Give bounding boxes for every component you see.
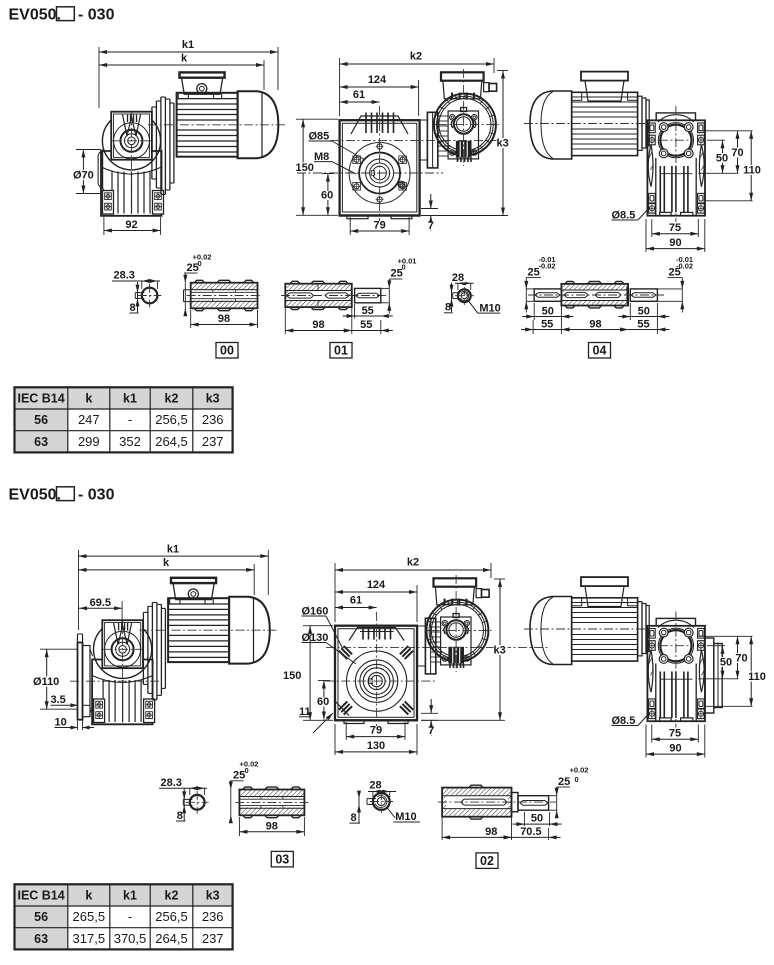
svg-text:28.3: 28.3: [161, 777, 182, 789]
svg-text:k1: k1: [123, 392, 137, 406]
svg-text:k: k: [181, 53, 188, 65]
svg-text:370,5: 370,5: [114, 931, 147, 946]
svg-text:00: 00: [220, 344, 234, 358]
svg-text:55: 55: [637, 319, 649, 331]
svg-text:+0.02: +0.02: [570, 766, 589, 775]
svg-text:EV050.: EV050.: [9, 487, 61, 504]
svg-text:50: 50: [720, 657, 732, 669]
svg-text:IEC B14: IEC B14: [17, 392, 64, 406]
svg-text:0: 0: [198, 259, 202, 268]
svg-text:+0.01: +0.01: [398, 257, 417, 266]
svg-text:10: 10: [55, 717, 67, 729]
svg-text:50: 50: [531, 813, 543, 825]
svg-text:237: 237: [202, 931, 224, 946]
svg-text:70.5: 70.5: [520, 826, 541, 838]
svg-text:150: 150: [283, 670, 301, 682]
svg-text:92: 92: [125, 219, 137, 231]
svg-text:28: 28: [452, 272, 464, 284]
svg-text:03: 03: [275, 853, 289, 867]
svg-text:56: 56: [34, 910, 48, 924]
svg-text:90: 90: [669, 743, 681, 755]
svg-text:236: 236: [202, 909, 224, 924]
svg-text:7: 7: [428, 220, 434, 232]
svg-text:+0.02: +0.02: [240, 760, 259, 769]
svg-text:75: 75: [669, 728, 681, 740]
svg-text:317,5: 317,5: [73, 931, 106, 946]
svg-text:55: 55: [541, 319, 553, 331]
svg-text:M10: M10: [395, 811, 416, 823]
svg-text:-0.02: -0.02: [539, 262, 556, 271]
svg-text:0: 0: [402, 263, 406, 272]
svg-text:124: 124: [367, 579, 386, 591]
svg-text:8: 8: [130, 302, 136, 314]
svg-text:8: 8: [445, 302, 451, 314]
svg-text:98: 98: [485, 826, 497, 838]
svg-text:79: 79: [370, 725, 382, 737]
svg-text:k: k: [85, 392, 92, 406]
svg-text:28.3: 28.3: [114, 270, 135, 282]
svg-text:8: 8: [351, 812, 357, 824]
svg-text:k2: k2: [165, 392, 179, 406]
svg-text:98: 98: [312, 319, 324, 331]
svg-text:63: 63: [34, 932, 48, 946]
svg-text:256,5: 256,5: [155, 412, 188, 427]
svg-text:237: 237: [202, 434, 224, 449]
svg-text:61: 61: [350, 595, 362, 607]
svg-text:k1: k1: [123, 889, 137, 903]
svg-text:69.5: 69.5: [90, 597, 111, 609]
svg-text:- 030: - 030: [78, 487, 115, 504]
svg-text:k3: k3: [497, 138, 509, 150]
svg-text:50: 50: [542, 306, 554, 318]
svg-text:299: 299: [78, 434, 100, 449]
svg-text:7: 7: [428, 725, 434, 737]
svg-text:60: 60: [321, 190, 333, 202]
svg-text:-0.02: -0.02: [676, 262, 693, 271]
svg-text:50: 50: [638, 306, 650, 318]
svg-text:3.5: 3.5: [51, 694, 66, 706]
svg-text:Ø110: Ø110: [33, 676, 59, 688]
svg-text:236: 236: [202, 412, 224, 427]
svg-text:k2: k2: [410, 51, 422, 63]
svg-text:55: 55: [362, 305, 374, 317]
svg-text:90: 90: [669, 237, 681, 249]
svg-text:55: 55: [360, 319, 372, 331]
svg-text:256,5: 256,5: [155, 909, 188, 924]
svg-text:02: 02: [480, 854, 494, 868]
svg-text:0: 0: [245, 766, 249, 775]
svg-text:50: 50: [716, 153, 728, 165]
svg-text:25: 25: [233, 770, 245, 782]
svg-text:k2: k2: [407, 557, 419, 569]
svg-text:k3: k3: [206, 889, 220, 903]
svg-text:98: 98: [266, 821, 278, 833]
svg-text:04: 04: [593, 344, 607, 358]
svg-text:130: 130: [367, 740, 385, 752]
svg-text:k: k: [85, 889, 92, 903]
svg-text:-: -: [128, 909, 132, 924]
svg-text:- 030: - 030: [78, 7, 115, 24]
svg-text:79: 79: [373, 220, 385, 232]
svg-text:75: 75: [669, 222, 681, 234]
svg-text:247: 247: [78, 412, 100, 427]
svg-text:264,5: 264,5: [155, 434, 188, 449]
svg-text:63: 63: [34, 435, 48, 449]
svg-text:EV050.: EV050.: [9, 7, 61, 24]
svg-text:28: 28: [369, 780, 381, 792]
svg-text:110: 110: [743, 165, 761, 177]
svg-text:25: 25: [558, 776, 570, 788]
svg-text:k3: k3: [206, 392, 220, 406]
svg-text:k: k: [163, 557, 170, 569]
svg-text:150: 150: [296, 162, 314, 174]
svg-text:IEC B14: IEC B14: [17, 889, 64, 903]
svg-text:0: 0: [575, 775, 579, 784]
svg-text:k1: k1: [182, 39, 194, 51]
svg-text:Ø70: Ø70: [73, 170, 94, 182]
svg-text:98: 98: [218, 313, 230, 325]
svg-text:k3: k3: [494, 645, 506, 657]
svg-text:k2: k2: [165, 889, 179, 903]
svg-text:11: 11: [299, 706, 311, 718]
svg-text:265,5: 265,5: [73, 909, 106, 924]
svg-text:01: 01: [334, 344, 348, 358]
svg-text:264,5: 264,5: [155, 931, 188, 946]
svg-text:61: 61: [353, 89, 365, 101]
svg-text:110: 110: [748, 671, 766, 683]
svg-text:70: 70: [731, 147, 743, 159]
svg-text:k1: k1: [167, 544, 179, 556]
svg-text:124: 124: [368, 74, 387, 86]
svg-text:+0.02: +0.02: [193, 253, 212, 262]
svg-text:8: 8: [177, 810, 183, 822]
svg-text:56: 56: [34, 413, 48, 427]
svg-text:70: 70: [735, 653, 747, 665]
svg-text:-: -: [128, 412, 132, 427]
svg-text:352: 352: [119, 434, 141, 449]
svg-text:98: 98: [589, 319, 601, 331]
svg-text:60: 60: [317, 696, 329, 708]
